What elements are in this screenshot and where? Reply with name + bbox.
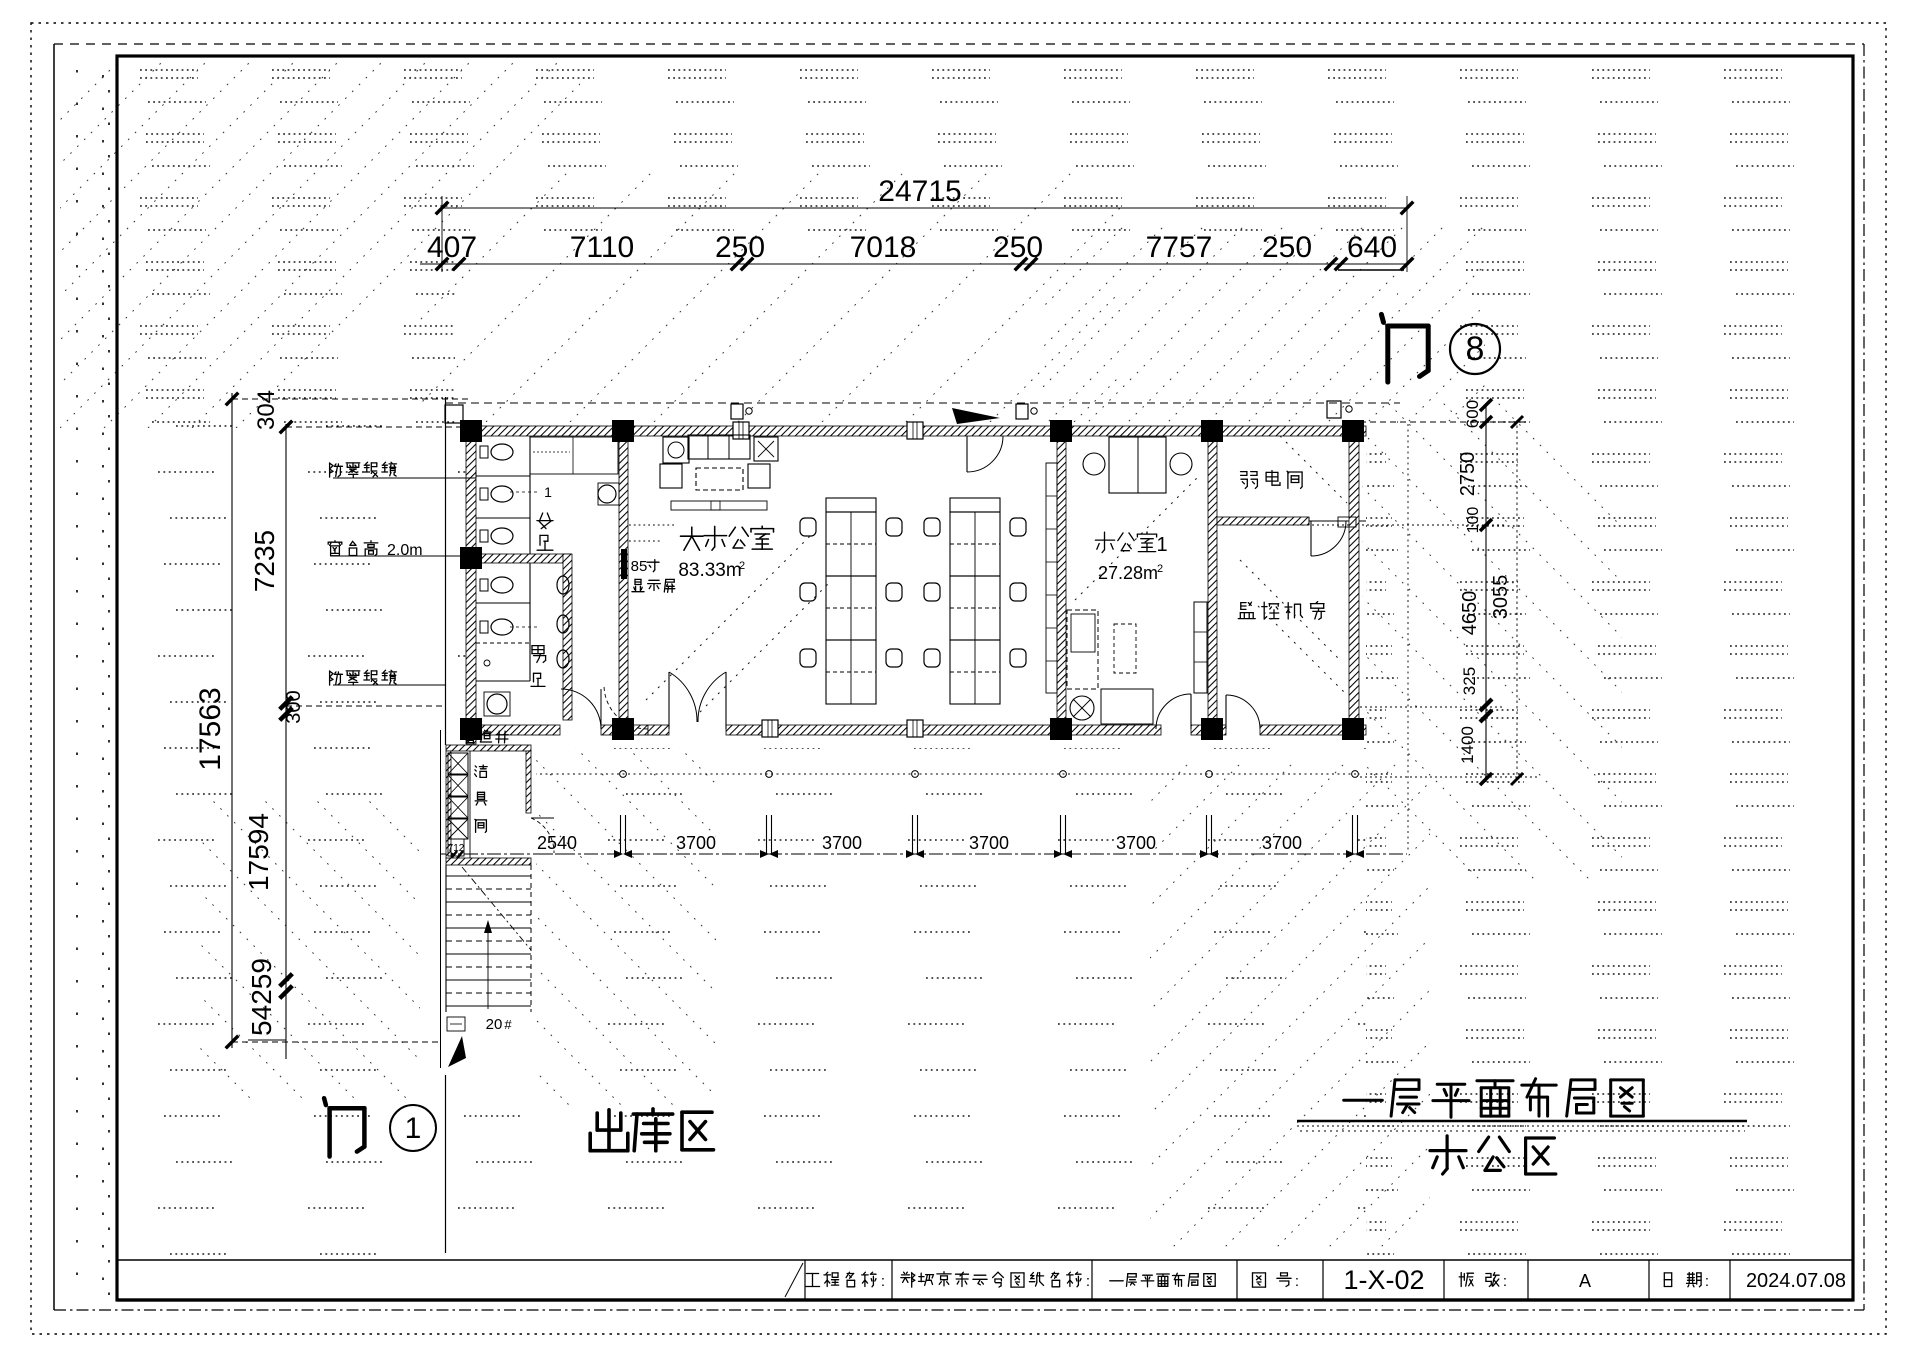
svg-text:17563: 17563 <box>194 687 227 770</box>
svg-text:2024.07.08: 2024.07.08 <box>1746 1270 1846 1292</box>
svg-text::: : <box>1503 1273 1507 1290</box>
svg-text:8: 8 <box>1466 330 1485 368</box>
svg-text:54259: 54259 <box>246 958 277 1036</box>
svg-text:3700: 3700 <box>1116 833 1156 853</box>
svg-text:2540: 2540 <box>537 833 577 853</box>
svg-text:7757: 7757 <box>1146 231 1213 264</box>
svg-text:A: A <box>1579 1271 1591 1291</box>
svg-text:250: 250 <box>993 231 1043 264</box>
svg-text:24715: 24715 <box>878 175 961 208</box>
svg-text:407: 407 <box>427 231 477 264</box>
svg-text:#: # <box>504 1017 512 1032</box>
svg-text:85: 85 <box>631 558 648 575</box>
svg-text:4650: 4650 <box>1459 591 1481 636</box>
svg-text:2: 2 <box>1157 563 1163 575</box>
svg-text::: : <box>1295 1273 1299 1290</box>
svg-text:250: 250 <box>1262 231 1312 264</box>
svg-text:300: 300 <box>283 690 305 723</box>
svg-text:250: 250 <box>715 231 765 264</box>
svg-text:1: 1 <box>405 1112 422 1145</box>
svg-text:1: 1 <box>1156 534 1167 556</box>
svg-text:3700: 3700 <box>676 833 716 853</box>
svg-text:2: 2 <box>739 560 745 572</box>
svg-text:83.33m: 83.33m <box>678 560 741 581</box>
svg-text:640: 640 <box>1347 231 1397 264</box>
svg-text:1400: 1400 <box>1458 726 1477 764</box>
svg-text:325: 325 <box>1460 667 1479 695</box>
svg-text::: : <box>1705 1273 1709 1290</box>
svg-text:2750: 2750 <box>1457 452 1479 497</box>
svg-text:600: 600 <box>1463 400 1482 428</box>
svg-text::: : <box>881 1273 885 1290</box>
svg-text:7110: 7110 <box>570 231 635 264</box>
svg-text:7235: 7235 <box>249 530 280 592</box>
svg-text:3700: 3700 <box>1262 833 1302 853</box>
svg-text:20: 20 <box>486 1016 503 1033</box>
svg-text:304: 304 <box>253 390 280 430</box>
svg-text:1: 1 <box>544 484 552 500</box>
svg-text:27.28m: 27.28m <box>1098 563 1158 583</box>
svg-text:100: 100 <box>1465 507 1482 534</box>
svg-text:7018: 7018 <box>850 231 917 264</box>
svg-text:712: 712 <box>448 843 465 854</box>
svg-text::: : <box>1086 1273 1090 1290</box>
svg-text:3700: 3700 <box>822 833 862 853</box>
svg-text:3055: 3055 <box>1490 575 1512 620</box>
svg-text:1-X-02: 1-X-02 <box>1343 1265 1424 1295</box>
svg-text:3700: 3700 <box>969 833 1009 853</box>
svg-text:17594: 17594 <box>243 813 274 891</box>
